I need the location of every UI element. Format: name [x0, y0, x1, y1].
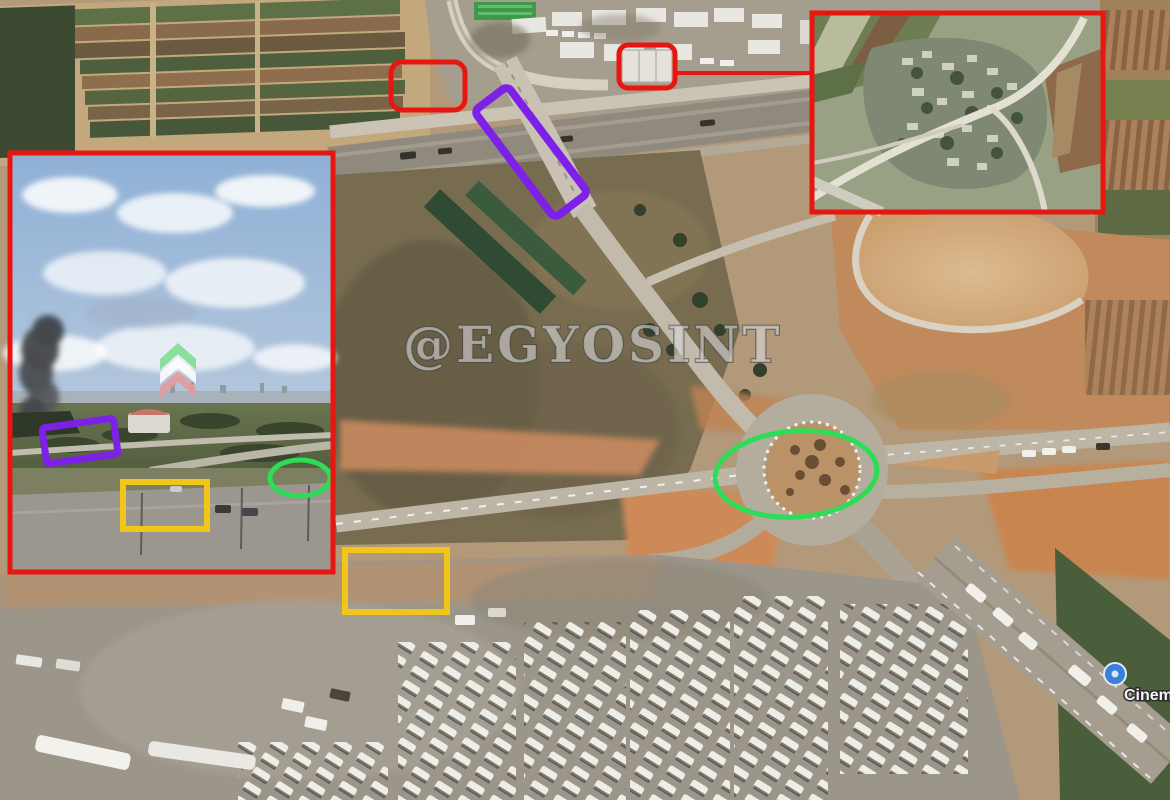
- parking-lot: [0, 555, 1020, 800]
- inset-ground-photo: [3, 153, 337, 572]
- fields-top-left: [0, 0, 430, 166]
- watermark-text: @EGYOSINT: [403, 315, 782, 374]
- map-pin-label: Cinema: [1124, 687, 1170, 704]
- distant-building: [128, 413, 170, 433]
- inset-topright-satellite: [812, 13, 1103, 212]
- satellite-scene: @EGYOSINT Cinema: [0, 0, 1170, 800]
- map-pin-dot: [1112, 671, 1119, 678]
- osint-satellite-screenshot: @EGYOSINT Cinema: [0, 0, 1170, 800]
